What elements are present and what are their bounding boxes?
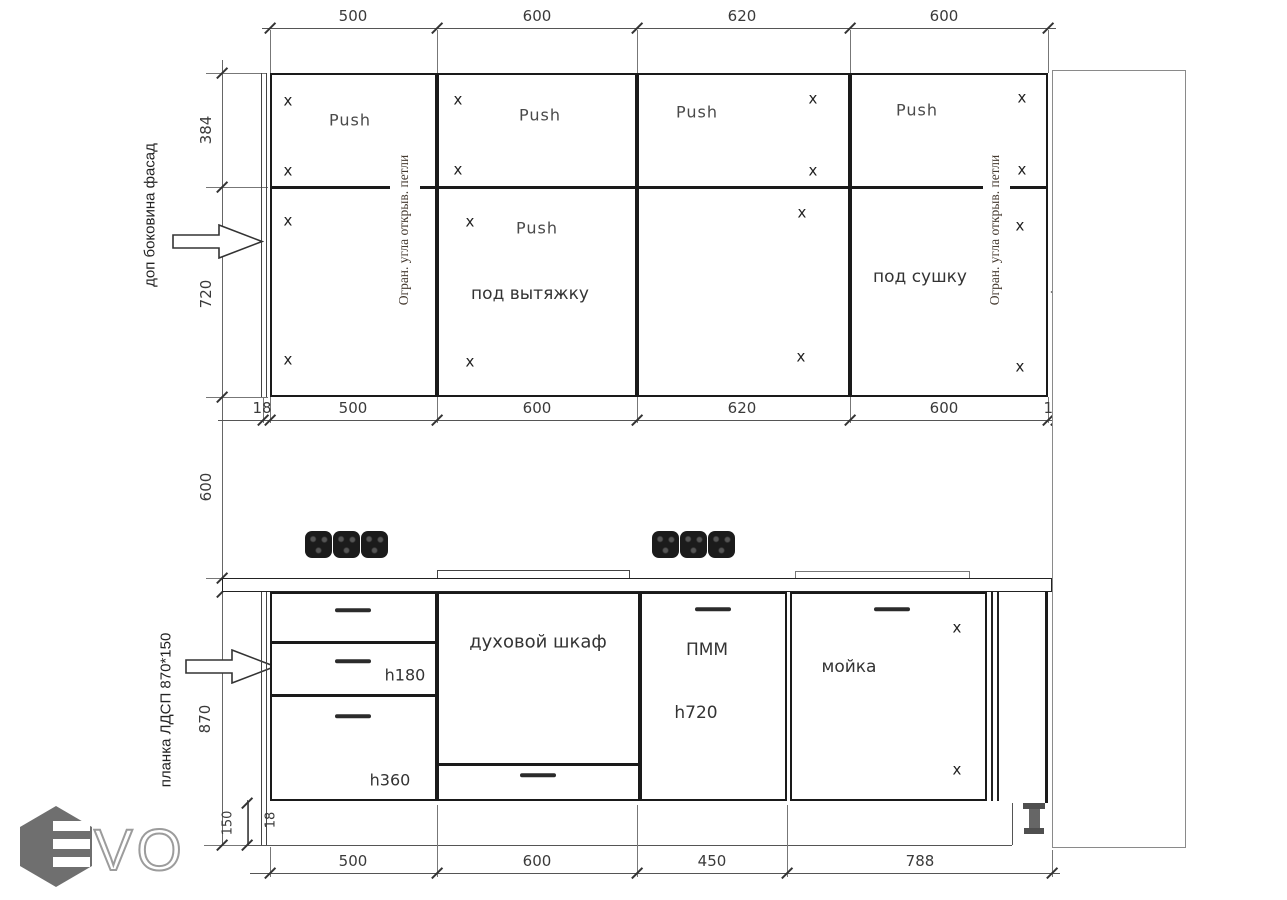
extension-line [637,805,638,877]
dim-bottom-788: 788 [906,852,935,870]
arrow-right-icon [172,224,264,259]
dim-mid-18l: 18 [252,399,271,417]
hinge-mark: x [1018,163,1027,178]
extension-line [206,397,268,398]
hinge-mark: x [284,353,293,368]
hinge-mark: x [809,164,818,179]
oven-label: духовой шкаф [469,632,607,653]
hinge-mark: x [1018,91,1027,106]
dim-mid-600: 600 [523,399,552,417]
hinge-mark: x [454,93,463,108]
hinge-mark: x [284,214,293,229]
upper-cabinet-620 [637,73,850,397]
adjustable-leg-stem [1029,809,1040,828]
hob-knob [680,531,707,558]
plinth-line [248,845,1012,846]
hinge-mark: x [953,763,962,778]
dim-bottom-450: 450 [698,852,727,870]
hob-knob [333,531,360,558]
dishwasher-handle [695,607,731,611]
dim-line-150 [247,800,248,845]
door-split-line [637,186,850,189]
dim-line-mid [218,420,1062,421]
door-split-line [1010,186,1048,189]
plinth-line [248,803,249,845]
drawer-h180-label: h180 [385,666,426,685]
extension-line [206,73,266,74]
left-side-panel-note: доп боковина фасад [142,143,159,287]
plinth-line [1012,803,1013,845]
dryer-cabinet-label: под сушку [873,267,967,287]
hinge-mark: x [809,92,818,107]
side-panel-line [261,592,262,845]
hinge-mark: x [466,215,475,230]
extension-line [850,30,851,73]
dim-bottom-600: 600 [523,852,552,870]
hinge-mark: x [798,206,807,221]
hood-cabinet-label: под вытяжку [471,284,589,304]
dim-mid-620: 620 [728,399,757,417]
hinge-mark: x [797,350,806,365]
drawer-handle [335,659,371,663]
arrow-right-icon [185,649,277,684]
hob-knob [305,531,332,558]
drawer-divider [270,641,437,644]
dishwasher-cabinet [640,592,787,801]
extension-line [437,805,438,877]
extension-line [270,30,271,73]
dim-18-panel: 18 [264,812,279,829]
hinge-mark: x [466,355,475,370]
kitchen-elevation-drawing: 500 600 620 600 384 720 600 870 Push Pus… [0,0,1287,900]
drawer-h360-label: h360 [370,771,411,790]
dim-line-top [262,28,1056,29]
dim-top-620: 620 [728,7,757,25]
drawer-cabinet [270,592,437,801]
dim-top-500: 500 [339,7,368,25]
drawer-handle [335,608,371,612]
dim-870: 870 [196,705,214,734]
push-label: Push [329,111,371,130]
push-label: Push [896,101,938,120]
door-split-line [420,186,637,189]
hinge-mark: x [1016,219,1025,234]
extension-line [637,30,638,73]
oven-lower-divider [437,763,640,766]
dim-gap-600: 600 [197,473,215,502]
hinge-mark: x [284,164,293,179]
filler-line [991,592,993,801]
dim-top-600: 600 [523,7,552,25]
hinge-mark: x [454,163,463,178]
side-panel-line [266,592,267,845]
hinge-mark: x [1016,360,1025,375]
door-split-line [270,186,390,189]
tall-side-panel [1052,70,1186,848]
dim-top-600b: 600 [930,7,959,25]
extension-line [437,30,438,73]
sink-door-handle [874,607,910,611]
hob-knob [361,531,388,558]
countertop [222,578,1052,592]
drawer-divider [270,694,437,697]
push-label: Push [516,219,558,238]
hinge-mark: x [284,94,293,109]
hob-knob [652,531,679,558]
hob-knob [708,531,735,558]
hinge-mark: x [953,621,962,636]
dim-bottom-500: 500 [339,852,368,870]
dim-mid-500: 500 [339,399,368,417]
base-run-right-edge [1045,592,1048,803]
extension-line [787,805,788,877]
door-split-line [850,186,983,189]
evo-logo: VO [14,800,224,895]
oven-drawer-handle [520,773,556,777]
push-label: Push [676,103,718,122]
dishwasher-label: ПММ [686,640,728,660]
sink-label: мойка [822,657,877,677]
dim-line-left [222,60,223,845]
oven-cabinet [437,592,640,801]
logo-letters: VO [94,818,186,883]
filler-line [997,592,999,801]
upper-cabinet-600-dryer [850,73,1048,397]
extension-line [206,187,268,188]
hinge-angle-note-right: Огран. угла открыв. петли [987,155,1003,305]
adjustable-leg-foot [1024,828,1044,834]
side-panel-line [266,73,267,397]
plinth-strip-note: планка ЛДСП 870*150 [158,633,175,788]
dim-mid-600b: 600 [930,399,959,417]
hinge-angle-note-left: Огран. угла открыв. петли [396,155,412,305]
dim-384: 384 [197,116,215,145]
drawer-handle [335,714,371,718]
dishwasher-height-label: h720 [674,703,717,723]
extension-line [1048,30,1049,73]
dim-720: 720 [197,280,215,309]
push-label: Push [519,106,561,125]
dim-line-bottom [250,873,1060,874]
